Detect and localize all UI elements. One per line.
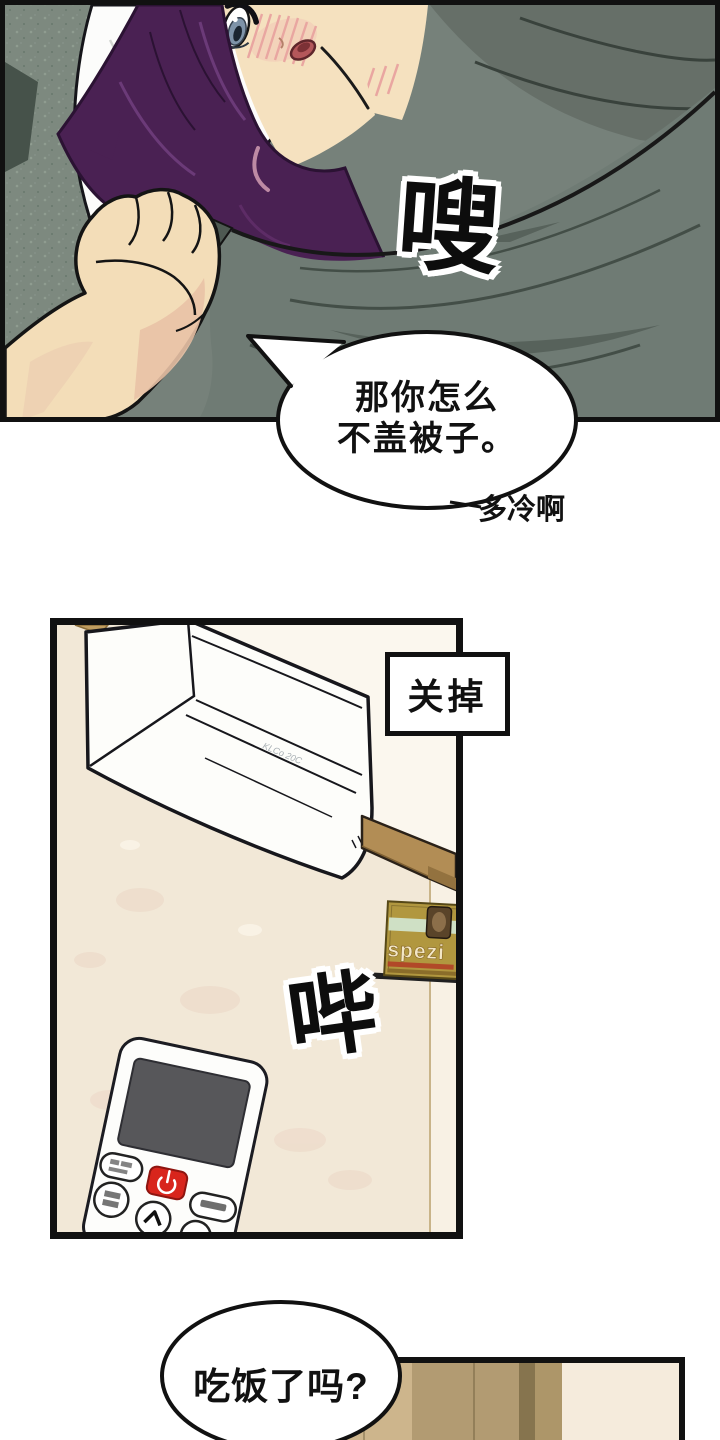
speech-bubble-1-text: 那你怎么 不盖被子。: [285, 378, 569, 460]
speech-bubbles: [0, 0, 720, 1440]
comic-page: KLCo 20C spezi: [0, 0, 720, 1440]
side-note: 多冷啊: [478, 486, 565, 528]
speech-line: 不盖被子。: [285, 419, 569, 460]
speech-line: 那你怎么: [285, 378, 569, 419]
speech-bubble-2-text: 吃饭了吗?: [166, 1356, 396, 1410]
